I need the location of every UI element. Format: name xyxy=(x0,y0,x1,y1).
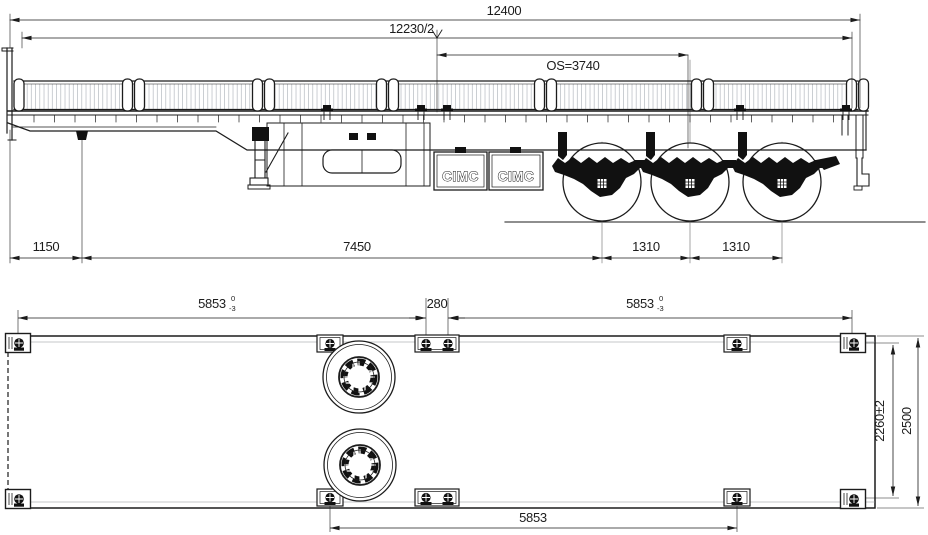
side-view-dimensions: 12400 12230/2 OS=3740 1150 7450 1310 131… xyxy=(10,3,860,263)
brand-logo-cimc-2: CIMC xyxy=(498,169,535,184)
dim-front-lock-tol-upper: 0 xyxy=(231,294,235,303)
dim-axle-spacing-1: 1310 xyxy=(632,239,660,254)
extension-lines xyxy=(10,14,860,263)
corner-fitting-icon xyxy=(841,490,866,509)
dim-rear-lock-tol-upper: 0 xyxy=(659,294,663,303)
corner-fitting-icon xyxy=(6,490,31,509)
landing-gear xyxy=(248,127,288,189)
dim-kingpin-to-axle: 7450 xyxy=(343,239,371,254)
dim-os-span: OS=3740 xyxy=(546,58,599,73)
winch-latch-2 xyxy=(367,133,376,140)
dim-front-lock-tol-lower: -3 xyxy=(229,304,236,313)
dim-overall-length: 12400 xyxy=(487,3,522,18)
brand-logo-cimc-1: CIMC xyxy=(442,169,479,184)
spare-wheel-2 xyxy=(324,429,396,501)
dim-half-ref: 12230/2 xyxy=(389,21,434,36)
dim-bottom-lock-span: 5853 xyxy=(519,510,547,525)
dim-lock-row-width: 2260±2 xyxy=(872,400,887,442)
corner-fitting-icon xyxy=(841,334,866,353)
twist-lock-pair-icon xyxy=(415,335,459,352)
twist-lock-pair-icon xyxy=(415,489,459,506)
dim-front-lock-span: 5853 xyxy=(198,296,226,311)
deck-outline xyxy=(8,336,875,508)
brand-panel-1: CIMC xyxy=(434,147,487,190)
front-board-cap xyxy=(14,79,24,111)
side-elevation-view: CIMC CIMC xyxy=(2,0,925,263)
dim-overall-width: 2500 xyxy=(899,407,914,435)
brand-panel-2: CIMC xyxy=(489,147,543,190)
dim-front-overhang: 1150 xyxy=(33,239,60,254)
twist-lock-icon xyxy=(724,489,750,506)
spare-wheel-1 xyxy=(323,341,395,413)
drawing-svg: CIMC CIMC xyxy=(0,0,928,535)
plan-view: 5853 0 -3 280 5853 0 -3 5853 2260±2 2500 xyxy=(6,294,925,532)
rear-end-bracket xyxy=(842,115,869,190)
winch-latch-1 xyxy=(349,133,358,140)
dim-axle-spacing-2: 1310 xyxy=(722,239,750,254)
corner-fitting-icon xyxy=(6,334,31,353)
dim-rear-lock-tol-lower: -3 xyxy=(657,304,664,313)
dim-center-gap: 280 xyxy=(427,296,448,311)
kingpin xyxy=(76,131,88,140)
toolbox xyxy=(323,150,401,173)
twist-lock-icon xyxy=(724,335,750,352)
trailer-engineering-drawing: CIMC CIMC xyxy=(0,0,928,535)
dim-rear-lock-span: 5853 xyxy=(626,296,654,311)
